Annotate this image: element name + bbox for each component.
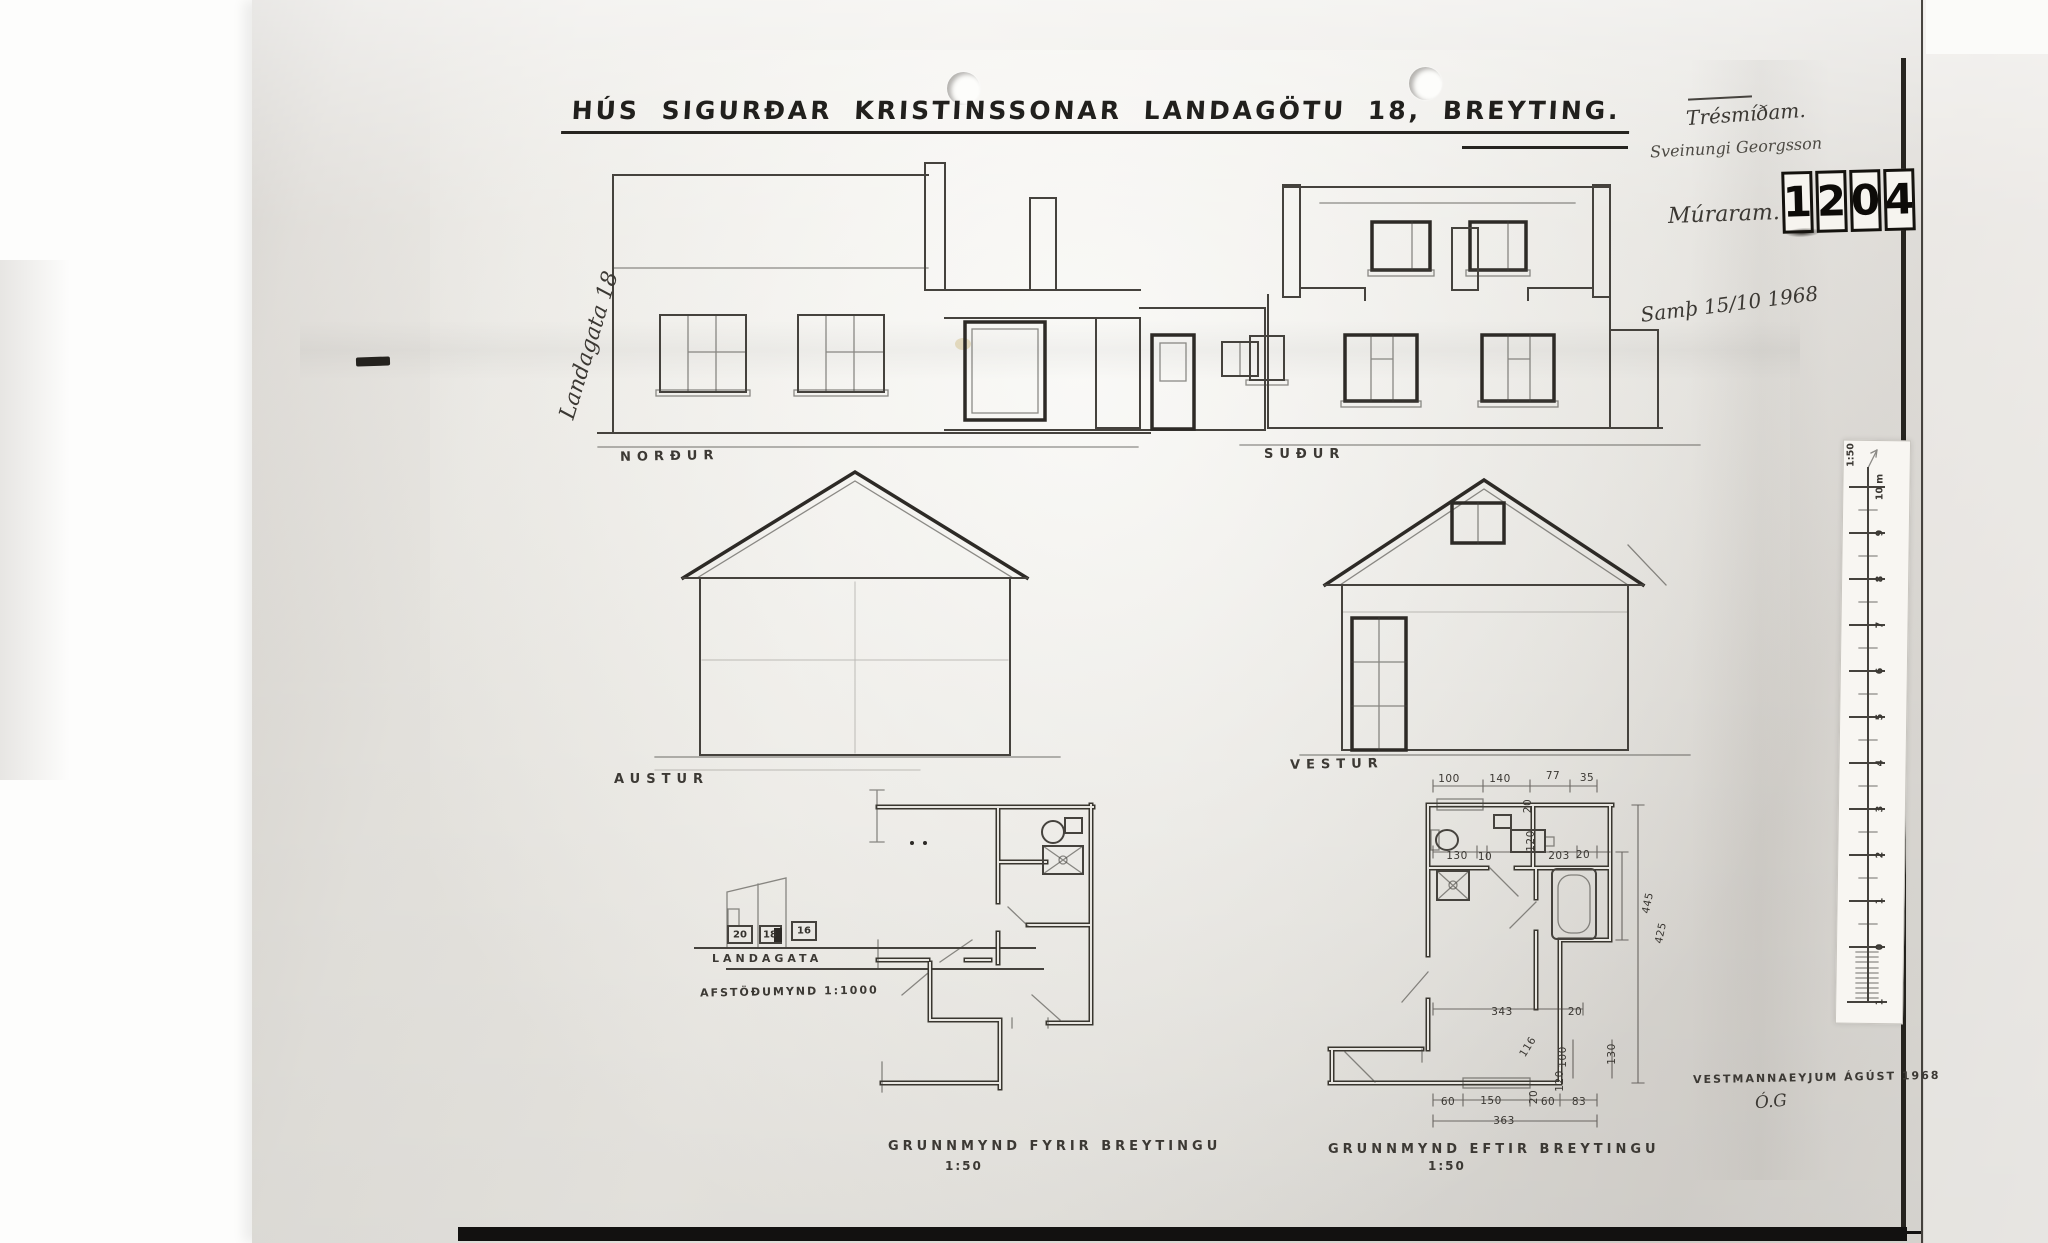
dimension-label: 100 [1557,1046,1569,1068]
dimension-label: 130 [1606,1043,1618,1065]
elevation-south-drawing [1240,185,1700,445]
ruler-mark-label: 1 [1875,898,1886,905]
scale-floor-plan-after: 1:50 [1428,1159,1466,1173]
stamp-digit: 2 [1815,170,1848,233]
dimension-label: 100 [1438,773,1460,785]
dimension-label: 83 [1572,1096,1586,1108]
label-north-elevation: NORÐUR [620,448,720,465]
caption-floor-plan-before: GRUNNMYND FYRIR BREYTINGU [888,1139,1221,1154]
label-east-elevation: AUSTUR [614,772,709,787]
dimension-label: 60 [1441,1096,1455,1108]
floor-plan-before-drawing [870,790,1093,1092]
dimension-label: 203 [1548,850,1570,862]
dimension-label: 120 [1525,830,1537,852]
ruler-mark-label: 9 [1875,530,1886,537]
dimension-label: 35 [1580,772,1594,784]
dimension-label: 20 [1528,1090,1540,1104]
stamp-digit: 4 [1883,168,1916,231]
scale-floor-plan-before: 1:50 [945,1159,983,1173]
elevation-east-drawing [655,472,1060,770]
ruler-mark-label: 4 [1875,760,1886,767]
stamp-digit: 0 [1849,169,1882,232]
mason-note: Múraram. [1668,200,1781,229]
stamp-digit: 1 [1781,171,1814,234]
dimension-label: 20 [1576,849,1590,861]
ruler-mark-label: 2 [1875,852,1886,859]
ruler-scale-label: 1:50 [1846,443,1857,467]
label-street: LANDAGATA [712,952,822,965]
scanned-drawing-page: HÚS SIGURÐAR KRISTINSSONAR LANDAGÖTU 18,… [0,0,2048,1243]
dimension-label: 150 [1480,1095,1502,1107]
dimension-label: 77 [1546,770,1560,782]
archive-number-stamp: 1 2 0 4 [1781,168,1916,233]
dimension-label: 20 [1568,1006,1582,1018]
lot-number: 18 [763,930,777,941]
title-underline [1462,146,1628,149]
dimension-label: 130 [1446,850,1468,862]
elevation-west-drawing [1300,480,1690,755]
lot-number: 20 [733,930,747,941]
ruler-mark-label: 3 [1875,806,1886,813]
caption-floor-plan-after: GRUNNMYND EFTIR BREYTINGU [1328,1142,1660,1157]
ruler-mark-label: 5 [1875,714,1886,721]
ruler-mark-label: 6 [1875,668,1886,675]
ruler-mark-label: 0 [1875,944,1886,951]
dimension-label: 20 [1522,799,1534,813]
initials-signature: Ó.G [1754,1091,1788,1114]
ruler-mark-label: 7 [1875,622,1886,629]
ruler-mark-label: 8 [1875,576,1886,583]
dimension-label: 10 [1478,851,1492,863]
elevation-north-drawing [598,163,1265,447]
ruler-mark-label: 10 m [1875,474,1886,500]
dimension-label: 120 [1554,1070,1566,1092]
label-west-elevation: VESTUR [1290,756,1384,773]
drawing-title: HÚS SIGURÐAR KRISTINSSONAR LANDAGÖTU 18,… [561,96,1631,134]
dimension-label: 363 [1493,1115,1515,1127]
dimension-label: 343 [1491,1006,1513,1018]
lot-number: 16 [797,926,811,937]
dimension-label: 60 [1541,1096,1555,1108]
drawing-linework [0,0,2048,1243]
ruler-mark-label: 1 [1875,999,1886,1006]
label-south-elevation: SUÐUR [1264,447,1345,462]
dimension-label: 140 [1489,773,1511,785]
floor-plan-after-drawing [1330,780,1644,1127]
